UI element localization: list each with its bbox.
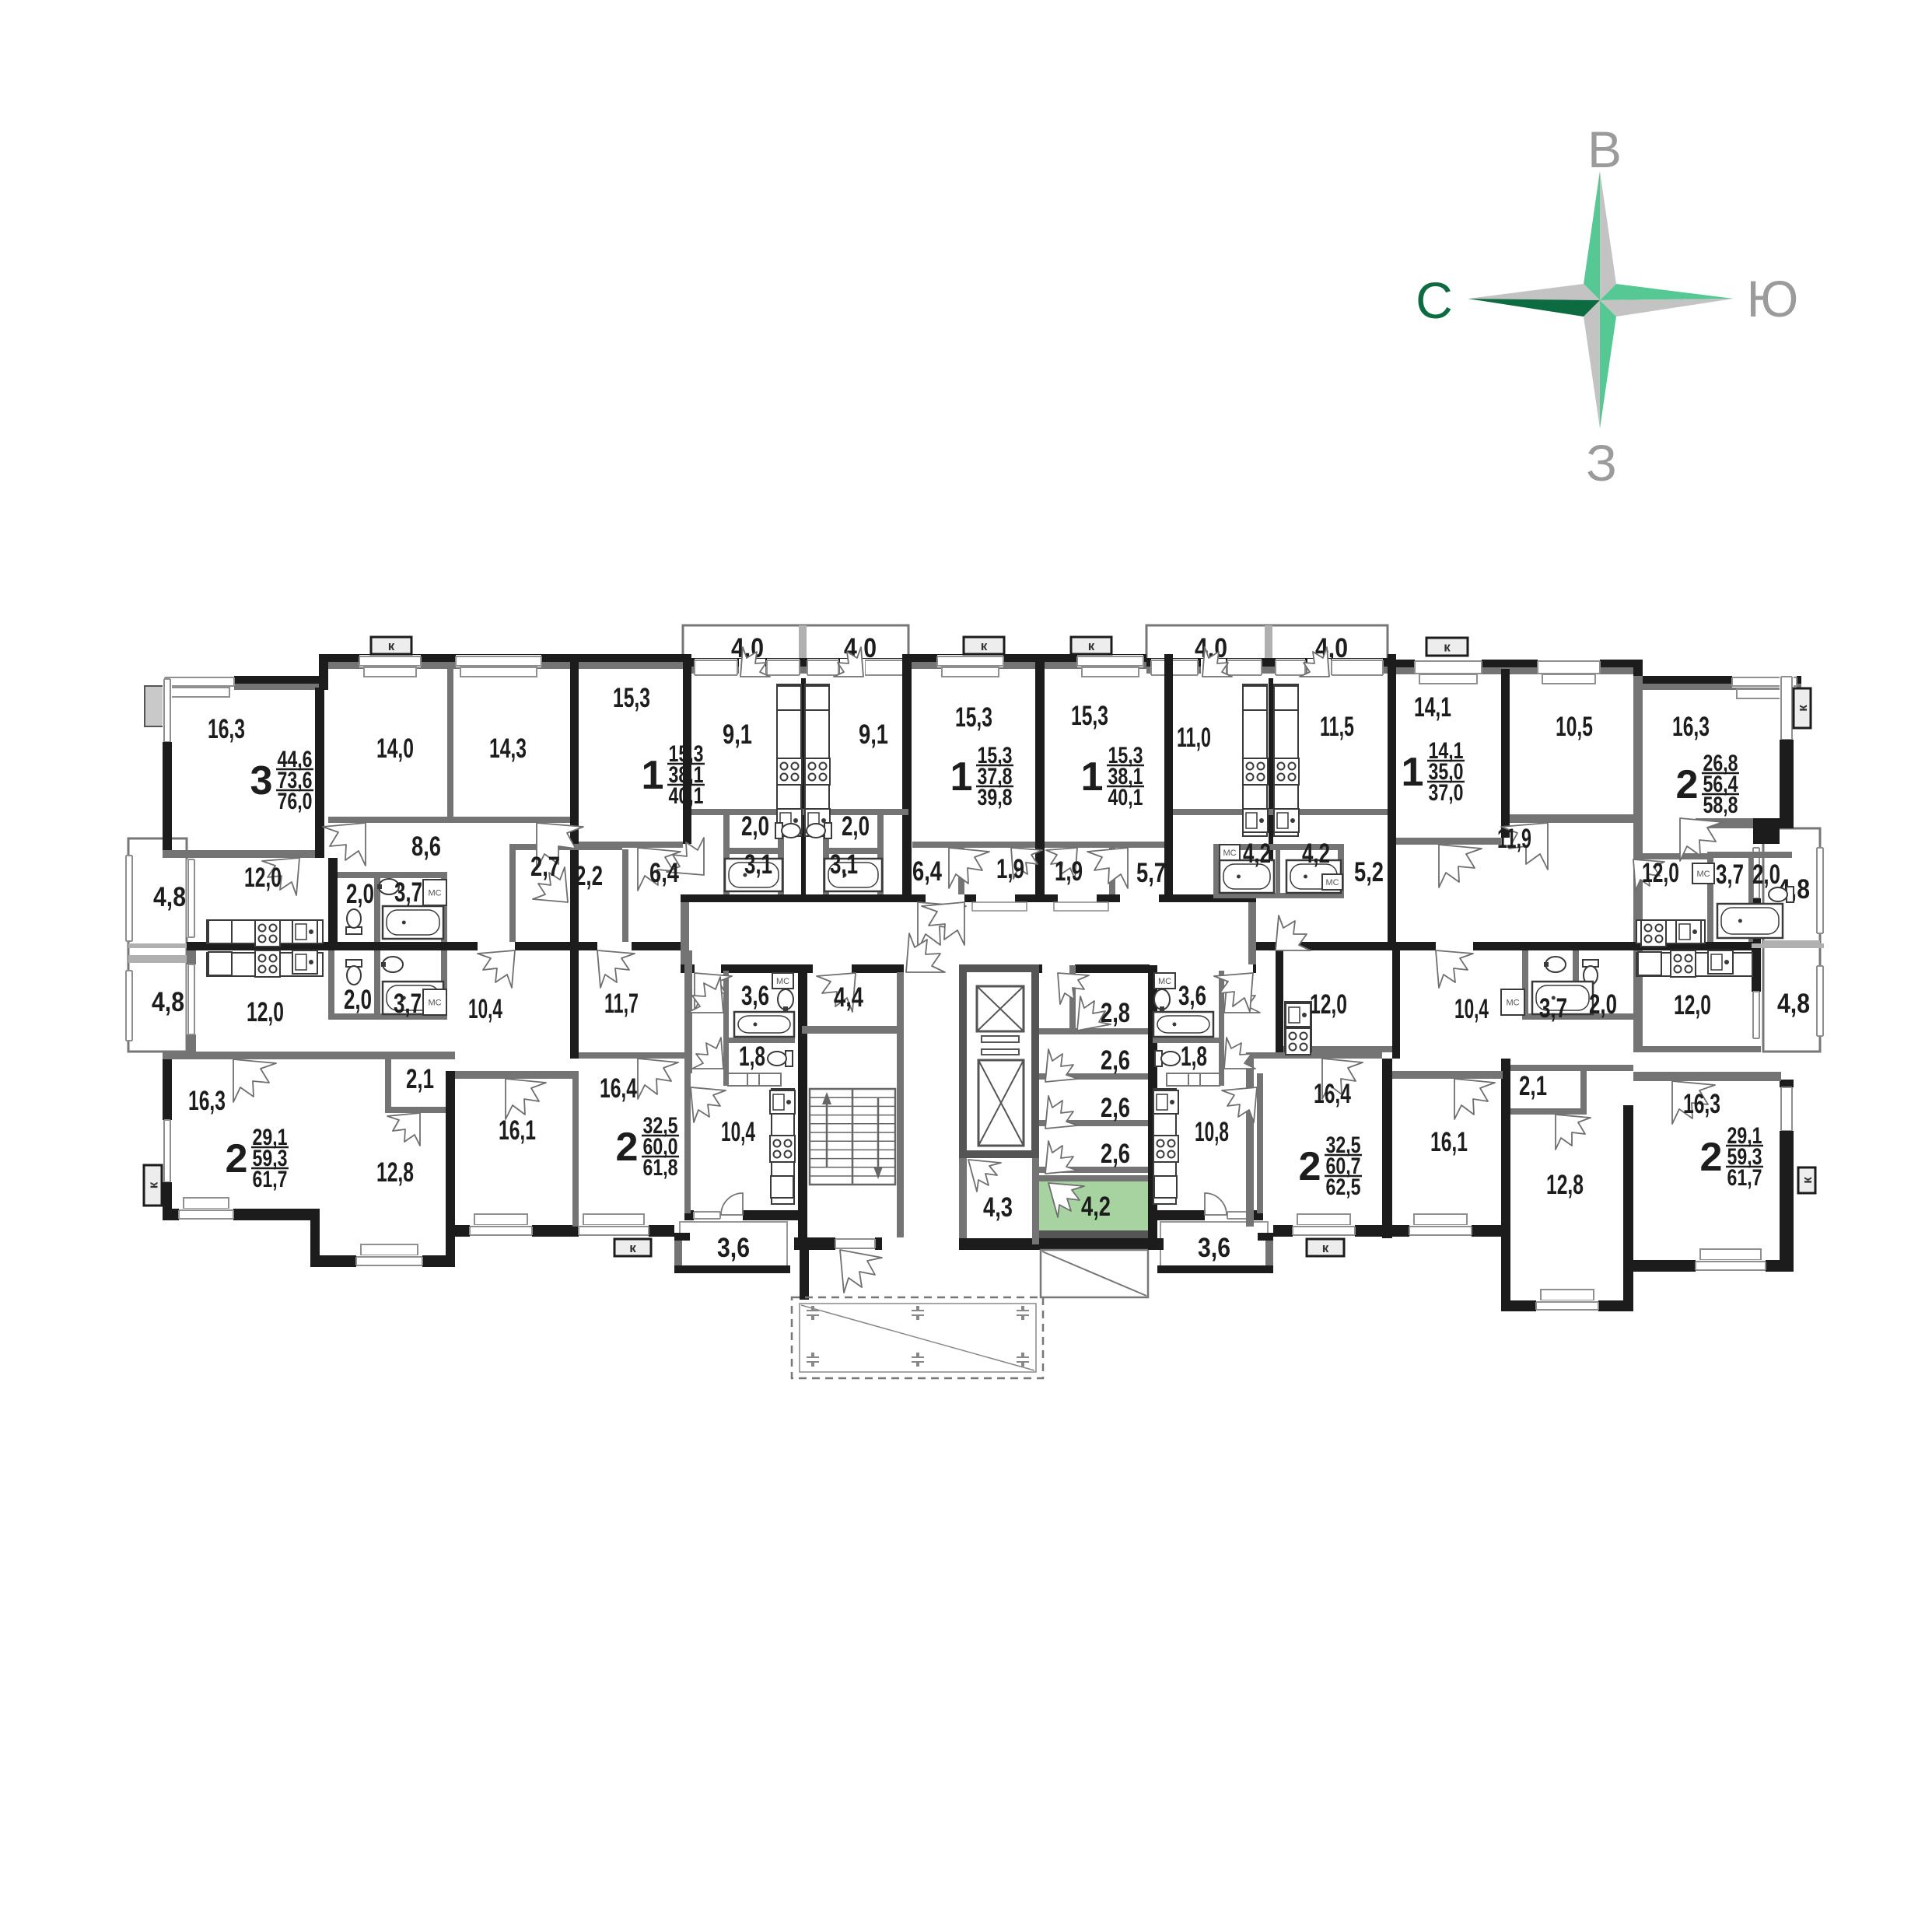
- svg-text:3,7: 3,7: [1539, 993, 1567, 1024]
- svg-text:11,0: 11,0: [1177, 723, 1211, 753]
- svg-text:2,0: 2,0: [741, 811, 769, 842]
- svg-text:МС: МС: [1158, 977, 1171, 986]
- svg-text:40,1: 40,1: [1108, 785, 1143, 810]
- svg-text:С: С: [1416, 271, 1453, 329]
- svg-text:к: к: [1322, 1241, 1329, 1255]
- svg-text:к: к: [1088, 639, 1095, 653]
- svg-text:2: 2: [226, 1136, 248, 1181]
- svg-text:3,6: 3,6: [1178, 981, 1206, 1011]
- svg-text:2,1: 2,1: [406, 1064, 434, 1094]
- svg-text:10,4: 10,4: [721, 1117, 755, 1147]
- svg-text:16,4: 16,4: [600, 1073, 637, 1104]
- svg-text:16,1: 16,1: [499, 1115, 536, 1146]
- svg-text:2,2: 2,2: [575, 861, 603, 891]
- svg-text:4,4: 4,4: [834, 982, 863, 1013]
- svg-text:к: к: [146, 1181, 161, 1188]
- svg-text:6,4: 6,4: [912, 856, 942, 887]
- svg-text:3,1: 3,1: [830, 849, 858, 880]
- svg-text:МС: МС: [1506, 999, 1519, 1008]
- svg-text:МС: МС: [1325, 878, 1339, 887]
- svg-text:1: 1: [1402, 750, 1424, 795]
- svg-text:61,8: 61,8: [643, 1155, 678, 1181]
- svg-text:В: В: [1587, 121, 1622, 178]
- svg-text:1,9: 1,9: [996, 854, 1024, 884]
- svg-text:4,2: 4,2: [1302, 838, 1330, 869]
- svg-text:14,1: 14,1: [1414, 692, 1451, 723]
- svg-text:2,0: 2,0: [1589, 989, 1617, 1020]
- svg-text:16,3: 16,3: [208, 714, 245, 744]
- svg-text:2,0: 2,0: [346, 879, 374, 909]
- svg-text:2: 2: [1700, 1135, 1723, 1180]
- svg-text:3,6: 3,6: [741, 981, 769, 1011]
- svg-text:16,3: 16,3: [188, 1086, 226, 1116]
- svg-text:1: 1: [1081, 754, 1104, 800]
- svg-text:МС: МС: [428, 999, 441, 1008]
- svg-text:16,3: 16,3: [1683, 1089, 1720, 1119]
- svg-text:к: к: [981, 639, 988, 653]
- svg-text:76,0: 76,0: [278, 789, 313, 814]
- svg-text:15,3: 15,3: [613, 683, 650, 713]
- svg-text:14,3: 14,3: [489, 733, 527, 764]
- svg-text:10,4: 10,4: [468, 994, 502, 1024]
- svg-text:к: к: [388, 639, 395, 653]
- svg-text:3,7: 3,7: [394, 877, 422, 908]
- svg-text:62,5: 62,5: [1326, 1174, 1361, 1200]
- svg-text:3,6: 3,6: [1198, 1233, 1230, 1263]
- svg-text:1,8: 1,8: [739, 1041, 765, 1072]
- svg-text:МС: МС: [1223, 849, 1236, 858]
- svg-text:1: 1: [950, 754, 973, 800]
- svg-text:2,6: 2,6: [1101, 1139, 1130, 1169]
- svg-text:2,6: 2,6: [1101, 1093, 1130, 1123]
- svg-text:к: к: [1444, 640, 1451, 655]
- svg-text:15,3: 15,3: [1071, 701, 1108, 731]
- svg-text:4,8: 4,8: [152, 987, 184, 1017]
- svg-text:2: 2: [1299, 1144, 1321, 1189]
- svg-text:37,0: 37,0: [1429, 780, 1464, 806]
- svg-text:2,0: 2,0: [842, 811, 870, 842]
- svg-text:Ю: Ю: [1747, 270, 1799, 327]
- svg-text:6,4: 6,4: [649, 858, 679, 888]
- svg-text:12,0: 12,0: [244, 863, 282, 893]
- svg-text:11,9: 11,9: [1497, 824, 1531, 854]
- svg-text:12,0: 12,0: [1310, 989, 1347, 1020]
- svg-text:3,1: 3,1: [744, 849, 772, 880]
- svg-text:11,5: 11,5: [1320, 712, 1354, 742]
- svg-text:9,1: 9,1: [723, 719, 752, 750]
- svg-text:40,1: 40,1: [669, 783, 704, 809]
- svg-text:З: З: [1586, 434, 1617, 492]
- svg-text:61,7: 61,7: [1727, 1165, 1762, 1191]
- svg-text:1: 1: [642, 753, 664, 798]
- svg-text:2: 2: [1676, 762, 1699, 807]
- svg-text:12,8: 12,8: [376, 1157, 414, 1188]
- svg-text:11,7: 11,7: [604, 989, 639, 1019]
- svg-text:1,8: 1,8: [1181, 1041, 1207, 1072]
- svg-text:10,5: 10,5: [1556, 712, 1593, 742]
- svg-text:9,1: 9,1: [859, 719, 888, 750]
- svg-text:14,0: 14,0: [376, 733, 414, 764]
- svg-text:2,0: 2,0: [344, 985, 372, 1015]
- svg-text:8,6: 8,6: [411, 831, 441, 862]
- svg-text:3,6: 3,6: [717, 1233, 750, 1263]
- svg-text:15,3: 15,3: [955, 702, 992, 733]
- svg-text:2,8: 2,8: [1101, 998, 1130, 1028]
- svg-text:10,8: 10,8: [1195, 1117, 1229, 1147]
- svg-text:61,7: 61,7: [253, 1167, 288, 1192]
- svg-text:3: 3: [250, 758, 273, 803]
- svg-text:4,8: 4,8: [153, 882, 186, 912]
- svg-text:5,7: 5,7: [1136, 858, 1166, 888]
- svg-text:12,0: 12,0: [1674, 990, 1711, 1020]
- svg-text:к: к: [1800, 1177, 1815, 1184]
- svg-text:4,2: 4,2: [1081, 1192, 1111, 1222]
- svg-text:4,8: 4,8: [1777, 989, 1810, 1019]
- svg-text:МС: МС: [1696, 870, 1710, 879]
- svg-text:2,1: 2,1: [1519, 1071, 1547, 1101]
- svg-text:10,4: 10,4: [1454, 994, 1489, 1024]
- svg-text:МС: МС: [428, 889, 441, 898]
- svg-text:39,8: 39,8: [978, 785, 1013, 810]
- svg-text:к: к: [629, 1241, 636, 1255]
- svg-text:12,8: 12,8: [1546, 1170, 1584, 1200]
- svg-text:к: к: [1795, 705, 1810, 712]
- svg-text:16,3: 16,3: [1672, 712, 1710, 742]
- svg-text:МС: МС: [776, 977, 789, 986]
- svg-text:2,0: 2,0: [1752, 859, 1780, 890]
- svg-text:2,6: 2,6: [1101, 1045, 1130, 1076]
- svg-text:58,8: 58,8: [1703, 793, 1738, 818]
- svg-text:4,2: 4,2: [1243, 838, 1271, 869]
- svg-text:1,9: 1,9: [1055, 856, 1083, 887]
- svg-text:12,0: 12,0: [1642, 858, 1679, 888]
- svg-text:2,7: 2,7: [530, 852, 560, 882]
- svg-text:2: 2: [616, 1125, 639, 1170]
- svg-text:16,4: 16,4: [1314, 1079, 1351, 1109]
- svg-text:3,7: 3,7: [1716, 859, 1744, 890]
- svg-text:12,0: 12,0: [247, 997, 284, 1027]
- svg-text:5,2: 5,2: [1354, 857, 1384, 887]
- svg-text:16,1: 16,1: [1430, 1127, 1468, 1157]
- svg-text:4,3: 4,3: [983, 1192, 1013, 1223]
- svg-text:3,7: 3,7: [394, 989, 422, 1019]
